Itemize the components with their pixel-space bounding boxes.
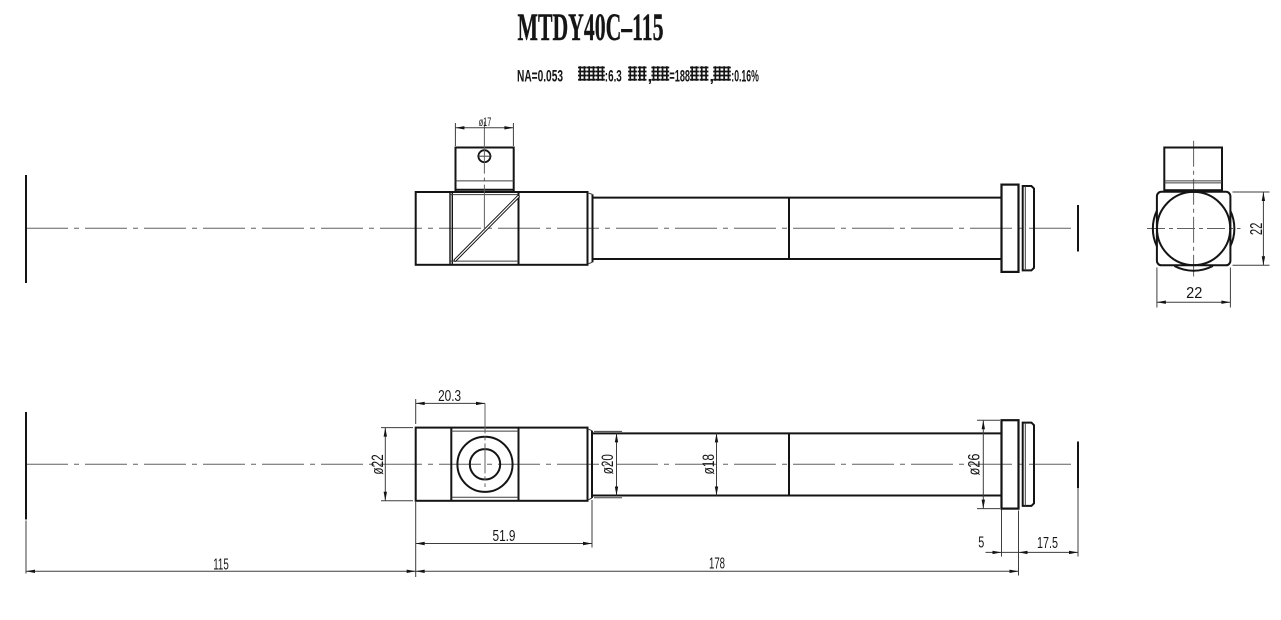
svg-text:22: 22 <box>1246 223 1266 236</box>
svg-text:20.3: 20.3 <box>438 388 461 405</box>
svg-text:NA=0.053: NA=0.053 <box>517 66 563 85</box>
svg-text:ø22: ø22 <box>368 454 387 474</box>
svg-text:=188: =188 <box>669 66 690 85</box>
svg-text:51.9: 51.9 <box>493 528 516 545</box>
svg-text:ø17: ø17 <box>479 115 492 129</box>
svg-text::0.16%: :0.16% <box>731 66 759 85</box>
svg-text::6.3: :6.3 <box>605 66 622 85</box>
svg-text:MTDY40C–115: MTDY40C–115 <box>518 6 664 49</box>
svg-text:ø26: ø26 <box>965 454 984 476</box>
svg-text:5: 5 <box>978 534 984 551</box>
svg-text:ø20: ø20 <box>598 454 617 474</box>
svg-text:115: 115 <box>213 557 229 574</box>
svg-text:178: 178 <box>709 556 725 573</box>
svg-text:17.5: 17.5 <box>1037 535 1058 552</box>
svg-text:22: 22 <box>1186 285 1202 302</box>
svg-text:ø18: ø18 <box>699 454 718 475</box>
